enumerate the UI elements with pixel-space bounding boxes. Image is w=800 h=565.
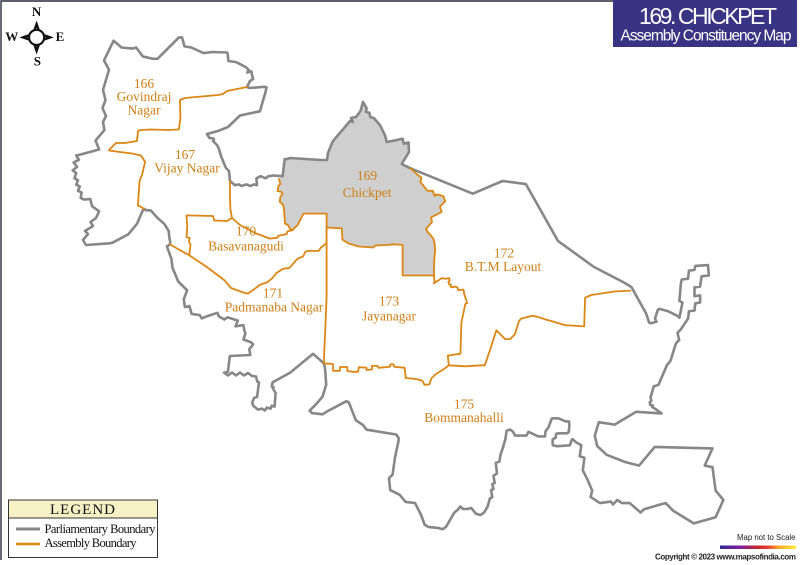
svg-text:Basavanagudi: Basavanagudi [208,239,284,254]
svg-text:Chickpet: Chickpet [343,185,392,200]
svg-text:E: E [56,29,65,44]
svg-text:Bommanahalli: Bommanahalli [424,410,504,425]
svg-text:N: N [32,4,42,19]
svg-text:171: 171 [263,286,283,301]
svg-text:173: 173 [379,294,400,309]
svg-text:170: 170 [236,224,257,239]
svg-text:169. CHICKPET: 169. CHICKPET [639,3,777,29]
svg-text:B.T.M Layout: B.T.M Layout [465,259,542,274]
svg-text:Padmanaba Nagar: Padmanaba Nagar [225,300,324,315]
svg-text:S: S [34,54,41,69]
svg-text:Parliamentary Boundary: Parliamentary Boundary [45,522,157,536]
svg-text:W: W [5,29,18,44]
svg-text:Nagar: Nagar [128,103,161,118]
svg-text:LEGEND: LEGEND [50,502,116,518]
svg-text:Copyright © 2023 www.mapsofind: Copyright © 2023 www.mapsofindia.com [655,553,796,562]
svg-text:Assembly Boundary: Assembly Boundary [45,536,138,550]
svg-text:Assembly Constituency Map: Assembly Constituency Map [621,28,792,45]
svg-text:Map not to Scale: Map not to Scale [737,533,796,542]
svg-text:Vijay Nagar: Vijay Nagar [154,161,220,176]
svg-text:Jayanagar: Jayanagar [362,309,416,324]
svg-text:169: 169 [357,168,378,183]
